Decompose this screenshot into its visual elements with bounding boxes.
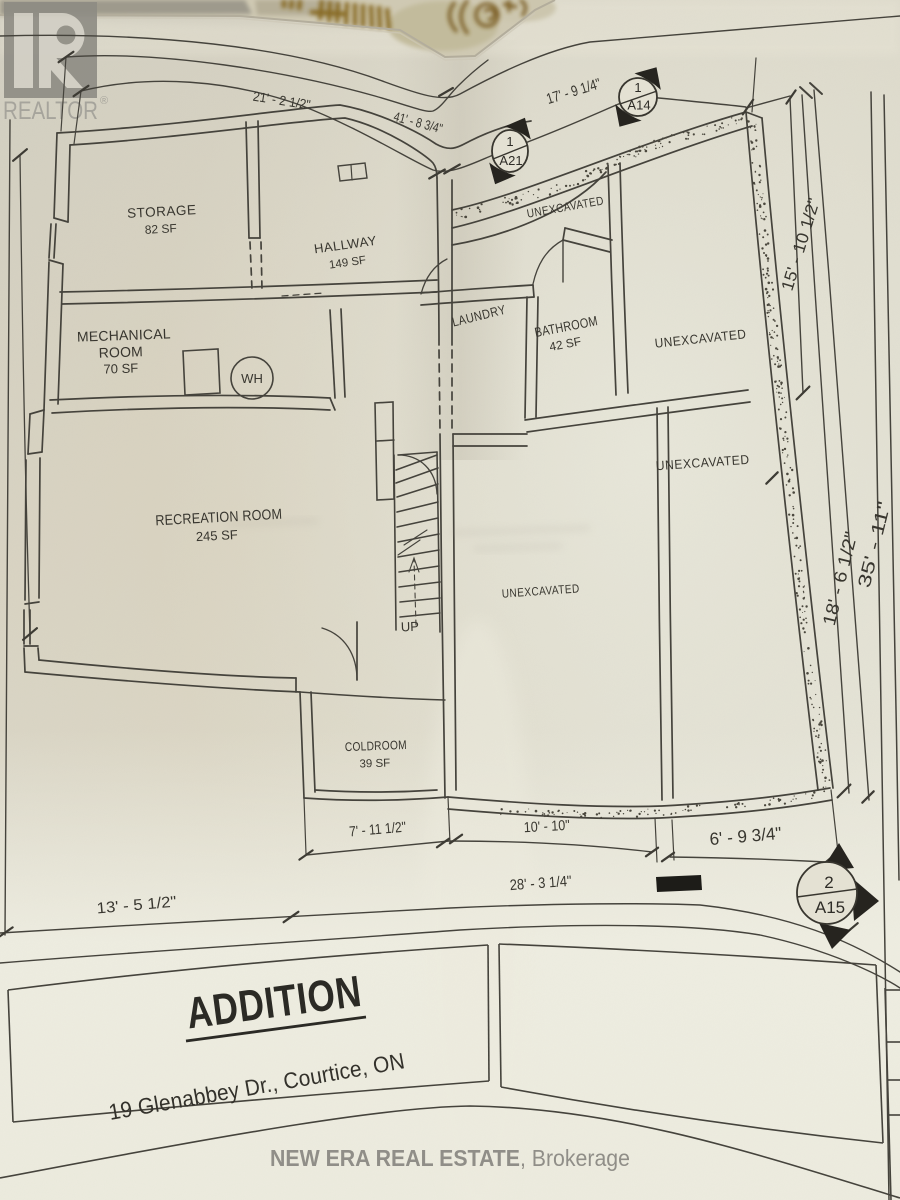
svg-text:COLDROOM: COLDROOM <box>345 738 407 754</box>
svg-text:70 SF: 70 SF <box>103 360 138 376</box>
svg-text:A21: A21 <box>499 153 522 168</box>
svg-text:39 SF: 39 SF <box>359 757 390 770</box>
svg-text:2: 2 <box>824 873 833 892</box>
svg-text:1: 1 <box>506 134 513 149</box>
svg-text:1: 1 <box>634 80 641 95</box>
svg-text:®: ® <box>100 95 108 107</box>
svg-text:MECHANICAL: MECHANICAL <box>77 325 171 344</box>
svg-text:UP: UP <box>401 619 420 635</box>
svg-text:REALTOR: REALTOR <box>3 97 98 125</box>
svg-text:WH: WH <box>241 371 263 386</box>
svg-text:245 SF: 245 SF <box>195 527 238 544</box>
svg-text:82 SF: 82 SF <box>144 221 177 237</box>
svg-text:A15: A15 <box>815 898 845 917</box>
svg-text:A14: A14 <box>627 98 650 113</box>
svg-text:10' - 10": 10' - 10" <box>523 818 570 836</box>
svg-text:NEW ERA REAL ESTATE, Brokerage: NEW ERA REAL ESTATE, Brokerage <box>270 1145 630 1171</box>
svg-text:ROOM: ROOM <box>98 343 143 361</box>
